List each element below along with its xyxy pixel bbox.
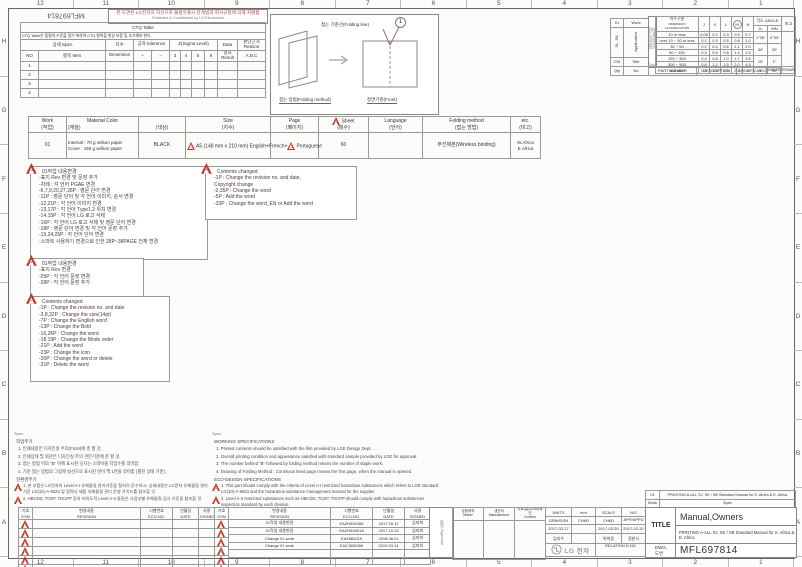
table-cell: 1 bbox=[19, 520, 33, 529]
line-item: 11 bbox=[74, 0, 140, 8]
line-item: 3. 접는 방법 뒤의 "B" 뒤에 표시된 숫자는 스테이플 작업수를 의미함… bbox=[18, 460, 210, 468]
table-cell bbox=[39, 88, 106, 97]
table-cell bbox=[173, 529, 199, 538]
line-item: 2. 인쇄상태 및 외관은 디자인실 주의 견본기준에 준 할 것. bbox=[18, 453, 210, 461]
rev-h-revision: 변경내용 REVISION bbox=[229, 508, 331, 520]
line-item: 3 bbox=[598, 559, 664, 567]
app-cell: Qty bbox=[611, 67, 624, 76]
ctq-sigma-5: 5 bbox=[192, 50, 205, 61]
chkd-name bbox=[572, 534, 596, 544]
scale-label: SCALE bbox=[596, 508, 622, 517]
table-cell bbox=[373, 557, 405, 565]
ctq-header-dimension: Dimension bbox=[106, 50, 134, 61]
chkd-label: CHKD bbox=[572, 517, 596, 525]
eco-spec-heading: ECO-DESIGN SPECIFICATIONS bbox=[214, 477, 440, 482]
spec-h-material: Material Color(재질) bbox=[67, 117, 139, 133]
table-cell: EAZ660219 bbox=[331, 535, 373, 543]
dwg-value-cell: MFL697814 bbox=[675, 543, 797, 558]
rev-h-date: 년월일 DATE bbox=[173, 508, 199, 520]
table-row: 11 bbox=[19, 520, 229, 529]
table-cell bbox=[205, 61, 218, 70]
table-cell bbox=[331, 557, 373, 565]
spec-material: Internal : 70 g vellum paperCover : 150 … bbox=[67, 133, 139, 159]
work-spec-heading: WORKING SPECIFICATIONS bbox=[214, 439, 440, 444]
line-item: G bbox=[0, 77, 8, 146]
table-cell: 0°30′ bbox=[768, 32, 782, 44]
table-row: 33 bbox=[19, 538, 229, 547]
description-header: DESCRIPTION bbox=[697, 67, 737, 76]
app-cell: Site bbox=[624, 58, 649, 67]
subtitle-cell: PRINTING A-ALL SJ, SK / SB Standard Manu… bbox=[675, 525, 797, 545]
table-cell bbox=[170, 88, 181, 97]
dwg-number: MFL697814 bbox=[676, 545, 738, 556]
table-row: 150 ~ 3000.40.81.01.73.515′1° bbox=[656, 56, 796, 62]
table-cell bbox=[192, 79, 205, 88]
drw-name: 김지수 bbox=[546, 534, 572, 544]
table-cell bbox=[170, 61, 181, 70]
table-cell bbox=[141, 556, 173, 565]
ctq-header-plus: + bbox=[134, 50, 152, 61]
table-cell: 2018.06.21 bbox=[373, 535, 405, 543]
line-item: H bbox=[0, 8, 8, 77]
table-cell bbox=[173, 556, 199, 565]
table-row: 01작업 내용변경EAZHA000182017.10.13심미희 bbox=[229, 527, 431, 535]
ruler-top: 121110987654321 bbox=[8, 0, 794, 8]
rev-h-sym: 기호 SYM bbox=[19, 508, 33, 520]
rev-h-sym: 기호 SYM bbox=[215, 508, 229, 520]
line-item: 4 bbox=[532, 0, 598, 8]
table-cell: 2 bbox=[19, 529, 33, 538]
table-cell bbox=[141, 538, 173, 547]
spec-color: BLACK bbox=[139, 133, 186, 159]
table-cell bbox=[173, 538, 199, 547]
spec-size: 2A5 (148 mm x 210 mm) English+French+3Po… bbox=[186, 133, 271, 159]
drw-label: DRW/DSN bbox=[546, 517, 572, 525]
lg-logo-icon bbox=[551, 544, 562, 555]
table-row bbox=[229, 550, 431, 558]
table-cell: 30′ bbox=[754, 44, 768, 56]
line-item: G bbox=[794, 77, 802, 146]
table-cell bbox=[405, 557, 431, 565]
revision-triangle-icon: 4 bbox=[21, 547, 30, 555]
spec-h-etc: etc.(비고) bbox=[511, 117, 541, 133]
remarker-header: REMARKER bbox=[781, 67, 796, 76]
revision-triangle-icon: 3 bbox=[287, 142, 296, 150]
part-header-row: PART NUMBER DESCRIPTION SPECIFICATION MA… bbox=[648, 66, 796, 76]
spec-label: Spec. bbox=[212, 432, 440, 437]
table-cell bbox=[33, 538, 141, 547]
table-cell: 2 bbox=[215, 529, 229, 538]
table-cell: 5 bbox=[215, 556, 229, 565]
app-name: 정완식 bbox=[622, 534, 646, 544]
specification-header: SPECIFICATION bbox=[737, 67, 767, 76]
table-cell: 1 bbox=[215, 520, 229, 529]
work-spec-mini-table: 01 PRINTING A-ALL SJ, SK / SB Standard M… bbox=[645, 490, 796, 508]
tol-angle-header: 각도 ANGLE bbox=[754, 17, 782, 26]
revision-triangle-icon: 4 bbox=[201, 163, 213, 174]
spec-h-language: Language(언어) bbox=[369, 117, 423, 133]
chkd2-name: 박희웅 bbox=[596, 534, 622, 544]
revision-triangle-icon: 4 bbox=[14, 496, 23, 504]
change-note-box-2: 4 Contents changed -1P : Change the revi… bbox=[205, 166, 357, 220]
table-cell bbox=[170, 70, 181, 79]
lg-logo: LG 전자 bbox=[551, 544, 589, 555]
table-cell: over 10 ~ 30 or less bbox=[656, 38, 699, 44]
title-label-cell: TITLE bbox=[645, 507, 677, 545]
table-cell bbox=[173, 520, 199, 529]
lg-logo-cell: LG 전자 bbox=[546, 544, 596, 557]
table-cell: 3 bbox=[215, 538, 229, 547]
spec-h-color: (색상) bbox=[139, 117, 186, 133]
table-cell: 4 bbox=[215, 547, 229, 556]
line-item: 4. Drawing of Folding Method : Continous… bbox=[216, 468, 440, 476]
app-cell: No bbox=[624, 67, 649, 76]
work-spec-heading: 작업주기 bbox=[16, 439, 210, 444]
table-cell bbox=[33, 547, 141, 556]
table-cell bbox=[205, 70, 218, 79]
revision-table-right: 변경내용 REVISION 시행번호 ECO.NO. 년월일 DATE 서명 S… bbox=[228, 507, 431, 565]
drawing-sheet: 121110987654321 121110987654321 HGFEDCBA… bbox=[0, 0, 802, 567]
tol-col-m: M bbox=[732, 17, 743, 32]
part-number-header: PART NUMBER bbox=[649, 67, 697, 76]
line-item: -스마트 사용하기 변경으로 인한 28P~38PAGE 전체 변경 bbox=[39, 239, 204, 245]
table-row: 22 bbox=[19, 529, 229, 538]
revision-triangle-icon: 1 bbox=[217, 520, 226, 528]
line-item: C bbox=[794, 351, 802, 420]
ctq-header-no: NO bbox=[21, 50, 39, 61]
table-cell bbox=[134, 70, 152, 79]
table-cell: 20′ bbox=[768, 44, 782, 56]
revision-triangle-icon: 4 bbox=[212, 496, 221, 504]
line-item: 4. 기준 접는 방법의 그림에 실선으로 표시된 면이 책 1면을 의미함 (… bbox=[18, 468, 210, 476]
table-cell bbox=[152, 61, 170, 70]
line-item: 1 bbox=[729, 559, 795, 567]
folding-diagram-box: 1 접는 기준선(Folding line) 접는 방법(Folding met… bbox=[270, 14, 439, 115]
table-cell bbox=[192, 70, 205, 79]
line-item: 2 bbox=[663, 0, 729, 8]
revision-triangle-icon: 1 bbox=[26, 163, 38, 174]
table-cell bbox=[106, 79, 134, 88]
drw-date: 2017-02-17 bbox=[546, 525, 572, 534]
tol-col-j: J bbox=[699, 17, 710, 32]
table-row: 1 bbox=[21, 61, 266, 70]
table-cell: 2017.09.11 bbox=[373, 520, 405, 528]
ctq-header-spec: 상세 Spec. bbox=[21, 40, 106, 51]
table-cell bbox=[39, 79, 106, 88]
line-item: 3 bbox=[598, 0, 664, 8]
line-item: -31P : Delete the word bbox=[39, 362, 166, 368]
spec-h-page: Page(페이지) bbox=[271, 117, 319, 133]
change-note-box-4: 3 Contents changed -1P : Change the revi… bbox=[30, 296, 170, 382]
app-label: APP/APPD bbox=[622, 517, 646, 525]
line-item: -28P : 각 언어 문장 추가 bbox=[39, 280, 140, 286]
tol-remark-header: 비고 bbox=[782, 17, 796, 32]
table-cell bbox=[218, 88, 238, 97]
table-cell: 심미희 bbox=[405, 527, 431, 535]
notice-en: Protected & Confidential by LG Electroni… bbox=[109, 17, 267, 21]
table-cell: 심미희 bbox=[405, 520, 431, 528]
table-cell bbox=[181, 88, 192, 97]
line-item: C bbox=[0, 351, 8, 420]
table-row: 10 or less0.050.20.30.50.71°30′0°30′ bbox=[656, 32, 796, 38]
table-cell bbox=[181, 70, 192, 79]
table-cell: 5 bbox=[19, 556, 33, 565]
dwg-label-cell: DWG, 도번 bbox=[645, 543, 677, 558]
confirm-label: 자료실(2D/3D)확인 Confirm bbox=[515, 508, 546, 521]
units-value: mm bbox=[572, 508, 596, 517]
units-label: UNITS bbox=[546, 508, 572, 517]
eco-note: 4 2. HBCDD, TCEP, TDCPP 등의 비의도적 Level A-… bbox=[23, 496, 210, 502]
work-spec-korean: Spec. 작업주기 1. 인쇄내용은 디자인실 주의(FILM)에 준 할 것… bbox=[14, 432, 210, 503]
line-item: 1. 인쇄내용은 디자인실 주의(FILM)에 준 할 것. bbox=[18, 445, 210, 453]
spec-text: PRINTING A-ALL SJ, SK / SB Standard Manu… bbox=[660, 491, 796, 500]
rev-h-signed: 서명 SIGNED bbox=[405, 508, 431, 520]
ctq-sigma-6: 6 bbox=[205, 50, 218, 61]
table-cell bbox=[152, 88, 170, 97]
line-item: F bbox=[0, 145, 8, 214]
table-cell bbox=[238, 88, 266, 97]
table-cell bbox=[134, 61, 152, 70]
ctq-header-item: 항목 Item bbox=[39, 50, 106, 61]
table-cell: 3 bbox=[19, 538, 33, 547]
ruler-right: HGFEDCBA bbox=[794, 8, 802, 557]
spec-h-folding: Folding method(접는 방법) bbox=[423, 117, 511, 133]
table-cell bbox=[39, 70, 106, 79]
ctq-table: CTQ Table CTQ Table은 품질의 수준을 알기 위하여 CTQ … bbox=[20, 22, 266, 98]
table-cell: Change 01 work bbox=[229, 542, 331, 550]
table-cell bbox=[229, 550, 331, 558]
ruler-left: HGFEDCBA bbox=[0, 8, 8, 557]
chkd2-label: CHKD bbox=[596, 517, 622, 525]
folding-line-label: 접는 기준선(Folding line) bbox=[321, 22, 369, 27]
table-cell: 3 bbox=[21, 79, 39, 88]
table-cell: 1 bbox=[21, 61, 39, 70]
table-row: 2 bbox=[21, 70, 266, 79]
ctq-sigma-3: 3 bbox=[170, 50, 181, 61]
line-item: 7 bbox=[336, 0, 402, 8]
doc-number-flipped: MFL697814 bbox=[26, 10, 106, 18]
revision-triangle-icon: 1 bbox=[332, 117, 341, 125]
line-item: E bbox=[0, 214, 8, 283]
revision-table-left: 기호 SYM 변경내용 REVISION 시행번호 ECO.NO. 년월일 DA… bbox=[18, 507, 229, 567]
line-item: 12 bbox=[8, 0, 74, 8]
table-cell bbox=[106, 61, 134, 70]
table-row: Change 01 workEAZJ5052862019.03.14심미희 bbox=[229, 542, 431, 550]
revision-triangle-icon: 3 bbox=[21, 538, 30, 546]
ctq-header-abc: A,B,C bbox=[238, 50, 266, 61]
table-row: 44 bbox=[19, 547, 229, 556]
table-cell bbox=[170, 79, 181, 88]
table-cell bbox=[331, 550, 373, 558]
manufacturer-cell bbox=[484, 520, 515, 559]
spec-language bbox=[369, 133, 423, 159]
table-cell bbox=[405, 550, 431, 558]
title-value-cell: Manual,Owners bbox=[675, 507, 797, 527]
spec-folding: 무선제본(Wireless binding) bbox=[423, 133, 511, 159]
line-item: B bbox=[0, 420, 8, 489]
spec-h-work: Work(작업) bbox=[29, 117, 67, 133]
folding-front-label: 정면기준(Front) bbox=[367, 97, 397, 104]
table-cell bbox=[199, 529, 215, 538]
table-cell bbox=[141, 547, 173, 556]
work-no: 01 bbox=[646, 491, 660, 500]
table-cell bbox=[199, 556, 215, 565]
app-cell: Work bbox=[624, 19, 649, 28]
table-cell bbox=[218, 70, 238, 79]
ctq-header-tol: 공차 tolerance bbox=[134, 40, 170, 51]
units-block: UNITS mm SCALE N/S DRW/DSN CHKD CHKD APP… bbox=[545, 507, 646, 557]
revision-triangle-icon: 2 bbox=[187, 142, 196, 150]
line-item: 8 bbox=[270, 0, 336, 8]
table-cell: Change 01 work bbox=[229, 535, 331, 543]
spec-sheet: 60 bbox=[319, 133, 369, 159]
table-cell bbox=[192, 61, 205, 70]
scale-value: N/S bbox=[622, 508, 646, 517]
table-cell bbox=[199, 547, 215, 556]
table-cell bbox=[238, 61, 266, 70]
table-cell bbox=[218, 61, 238, 70]
table-cell: 4 bbox=[19, 547, 33, 556]
line-item: D bbox=[794, 283, 802, 352]
rev-h-eco: 시행번호 ECO.NO. bbox=[141, 508, 173, 520]
dwg-label: DWG, 도번 bbox=[655, 545, 667, 556]
table-cell bbox=[33, 556, 141, 565]
table-cell bbox=[152, 70, 170, 79]
revision-triangle-icon: 3 bbox=[26, 293, 38, 304]
table-cell bbox=[134, 88, 152, 97]
chkd-date bbox=[572, 525, 596, 534]
table-row bbox=[229, 557, 431, 565]
revision-triangle-icon: 2 bbox=[14, 483, 23, 491]
table-cell bbox=[173, 547, 199, 556]
revision-triangle-icon: 3 bbox=[217, 538, 226, 546]
table-cell bbox=[238, 70, 266, 79]
table-cell: 01작업 내용변경 bbox=[229, 520, 331, 528]
rev-h-signed: 서명 SIGNED bbox=[199, 508, 215, 520]
revision-triangle-icon: 2 bbox=[212, 483, 221, 491]
folding-line-marker: 1 bbox=[395, 17, 406, 28]
tol-col-l: L bbox=[721, 17, 732, 32]
table-cell bbox=[199, 520, 215, 529]
title-value: Manual,Owners bbox=[676, 512, 743, 523]
table-cell: 0.05 bbox=[699, 32, 710, 38]
revision-triangle-icon: 2 bbox=[26, 255, 38, 266]
table-row: 01작업 내용변경EAZH6001662017.09.11심미희 bbox=[229, 520, 431, 528]
tol-col-k: K bbox=[710, 17, 721, 32]
line-item: 4 bbox=[532, 559, 598, 567]
approval-cell: 협의 Approval bbox=[429, 507, 454, 558]
table-cell: EAZH600166 bbox=[331, 520, 373, 528]
table-cell: 4 bbox=[21, 88, 39, 97]
table-row: Change 01 workEAZ6602192018.06.21심미희 bbox=[229, 535, 431, 543]
revision-triangle-icon: 5 bbox=[217, 556, 226, 564]
table-cell bbox=[205, 88, 218, 97]
table-cell bbox=[218, 79, 238, 88]
table-cell bbox=[205, 79, 218, 88]
maker-label: 금형제작 Maker bbox=[453, 508, 484, 521]
ctq-header-minus: − bbox=[152, 50, 170, 61]
ctq-header-dim: 치수 bbox=[106, 40, 134, 51]
table-cell: EAZHA00018 bbox=[331, 527, 373, 535]
ctq-header-reason: 판단근거 Reason bbox=[238, 40, 266, 51]
eco-note: 2 1. 본 부품은 LG전자의 Level A-I 유해물질 관리기준을 철저… bbox=[23, 483, 210, 495]
table-row: 30 ~ 500.20.40.61.12.030′20′ bbox=[656, 44, 796, 50]
approval-label: 협의 Approval bbox=[439, 520, 444, 545]
line-item: 3. The number behind "B" followed by fol… bbox=[216, 460, 440, 468]
spec-h-size: Size(치수) bbox=[186, 117, 271, 133]
spec-work: 01 bbox=[29, 133, 67, 159]
maker-block: 금형제작 Maker 생산처 Manufacturer 자료실(2D/3D)확인… bbox=[452, 507, 546, 560]
table-cell bbox=[33, 520, 141, 529]
line-item: -33P : Change the word_EN or Add the wor… bbox=[214, 201, 353, 207]
spec-h-sheet: 1Sheet(매수) bbox=[319, 117, 369, 133]
maker-cell bbox=[453, 520, 484, 559]
confirm-cell bbox=[515, 520, 546, 559]
line-item: 1 bbox=[729, 0, 795, 8]
line-item: 1. Printed contents should be satisfied … bbox=[216, 445, 440, 453]
eco-note: 2 1. This part should comply with the cr… bbox=[221, 483, 440, 495]
table-cell bbox=[106, 70, 134, 79]
app-cell: 01 bbox=[611, 19, 624, 28]
table-cell bbox=[39, 61, 106, 70]
line-item: 5 bbox=[467, 0, 533, 8]
revision-triangle-icon: 2 bbox=[217, 529, 226, 537]
work-spec-english: Spec. WORKING SPECIFICATIONS 1. Printed … bbox=[212, 432, 440, 509]
folding-method-label: 접는 방법(Folding method) bbox=[279, 97, 331, 104]
table-cell: 심미희 bbox=[405, 535, 431, 543]
revision-triangle-icon: 5 bbox=[21, 556, 30, 564]
change-note-box-3: 2 01작업 내용변경 -표지 Rev 변경-25P : 각 언어 문장 변경-… bbox=[30, 258, 144, 298]
table-cell bbox=[134, 79, 152, 88]
revision-triangle-icon: 2 bbox=[21, 529, 30, 537]
ctq-sigma-4: 4 bbox=[181, 50, 192, 61]
app-date: 2017-02-20 bbox=[622, 525, 646, 534]
change-note-box-1: 1 01작업 내용변경 -표지 Rev 변경 및 문장 추가-차례 : 각 언어… bbox=[30, 166, 208, 260]
table-cell bbox=[192, 88, 205, 97]
main-spec-table: Work(작업) Material Color(재질) (색상) Size(치수… bbox=[28, 116, 541, 159]
line-item: 6 bbox=[401, 0, 467, 8]
rev-h-date: 년월일 DATE bbox=[373, 508, 405, 520]
manufacturer-label: 생산처 Manufacturer bbox=[484, 508, 515, 521]
chkd2-date: 2017-02-20 bbox=[596, 525, 622, 534]
ctq-title: CTQ Table bbox=[21, 23, 266, 33]
line-item: 5 bbox=[467, 559, 533, 567]
ctq-header-sigma: Z(Sigma Level) bbox=[170, 40, 218, 51]
table-cell bbox=[106, 88, 134, 97]
app-cell: Application bbox=[624, 28, 649, 58]
table-cell: 1°30′ bbox=[754, 32, 768, 44]
table-cell bbox=[199, 538, 215, 547]
table-cell bbox=[181, 61, 192, 70]
line-item: B bbox=[794, 420, 802, 489]
title-label: TITLE bbox=[651, 522, 670, 530]
table-cell: 2 bbox=[21, 70, 39, 79]
ctq-header-data: Data bbox=[218, 40, 238, 51]
spec-label: Spec. bbox=[14, 432, 210, 437]
eco-spec-heading: 친환경주기 bbox=[16, 477, 210, 482]
table-cell bbox=[141, 529, 173, 538]
table-row: 4 bbox=[21, 88, 266, 97]
tolerance-class-header: 치수구분DIMENSION CLASSIFICATION bbox=[656, 17, 699, 32]
line-item: 10 bbox=[139, 0, 205, 8]
table-row: 3 bbox=[21, 79, 266, 88]
line-item: E bbox=[794, 214, 802, 283]
application-table: 01Work SL, SKApplication CWSite QtyNo bbox=[610, 18, 649, 76]
revision-triangle-icon: 4 bbox=[217, 547, 226, 555]
ctq-note: CTQ Table은 품질의 수준을 알기 위하여 CTQ 항목을 항상 보증 … bbox=[21, 33, 266, 40]
line-item: F bbox=[794, 145, 802, 214]
maker-header: MAKER bbox=[767, 67, 781, 76]
